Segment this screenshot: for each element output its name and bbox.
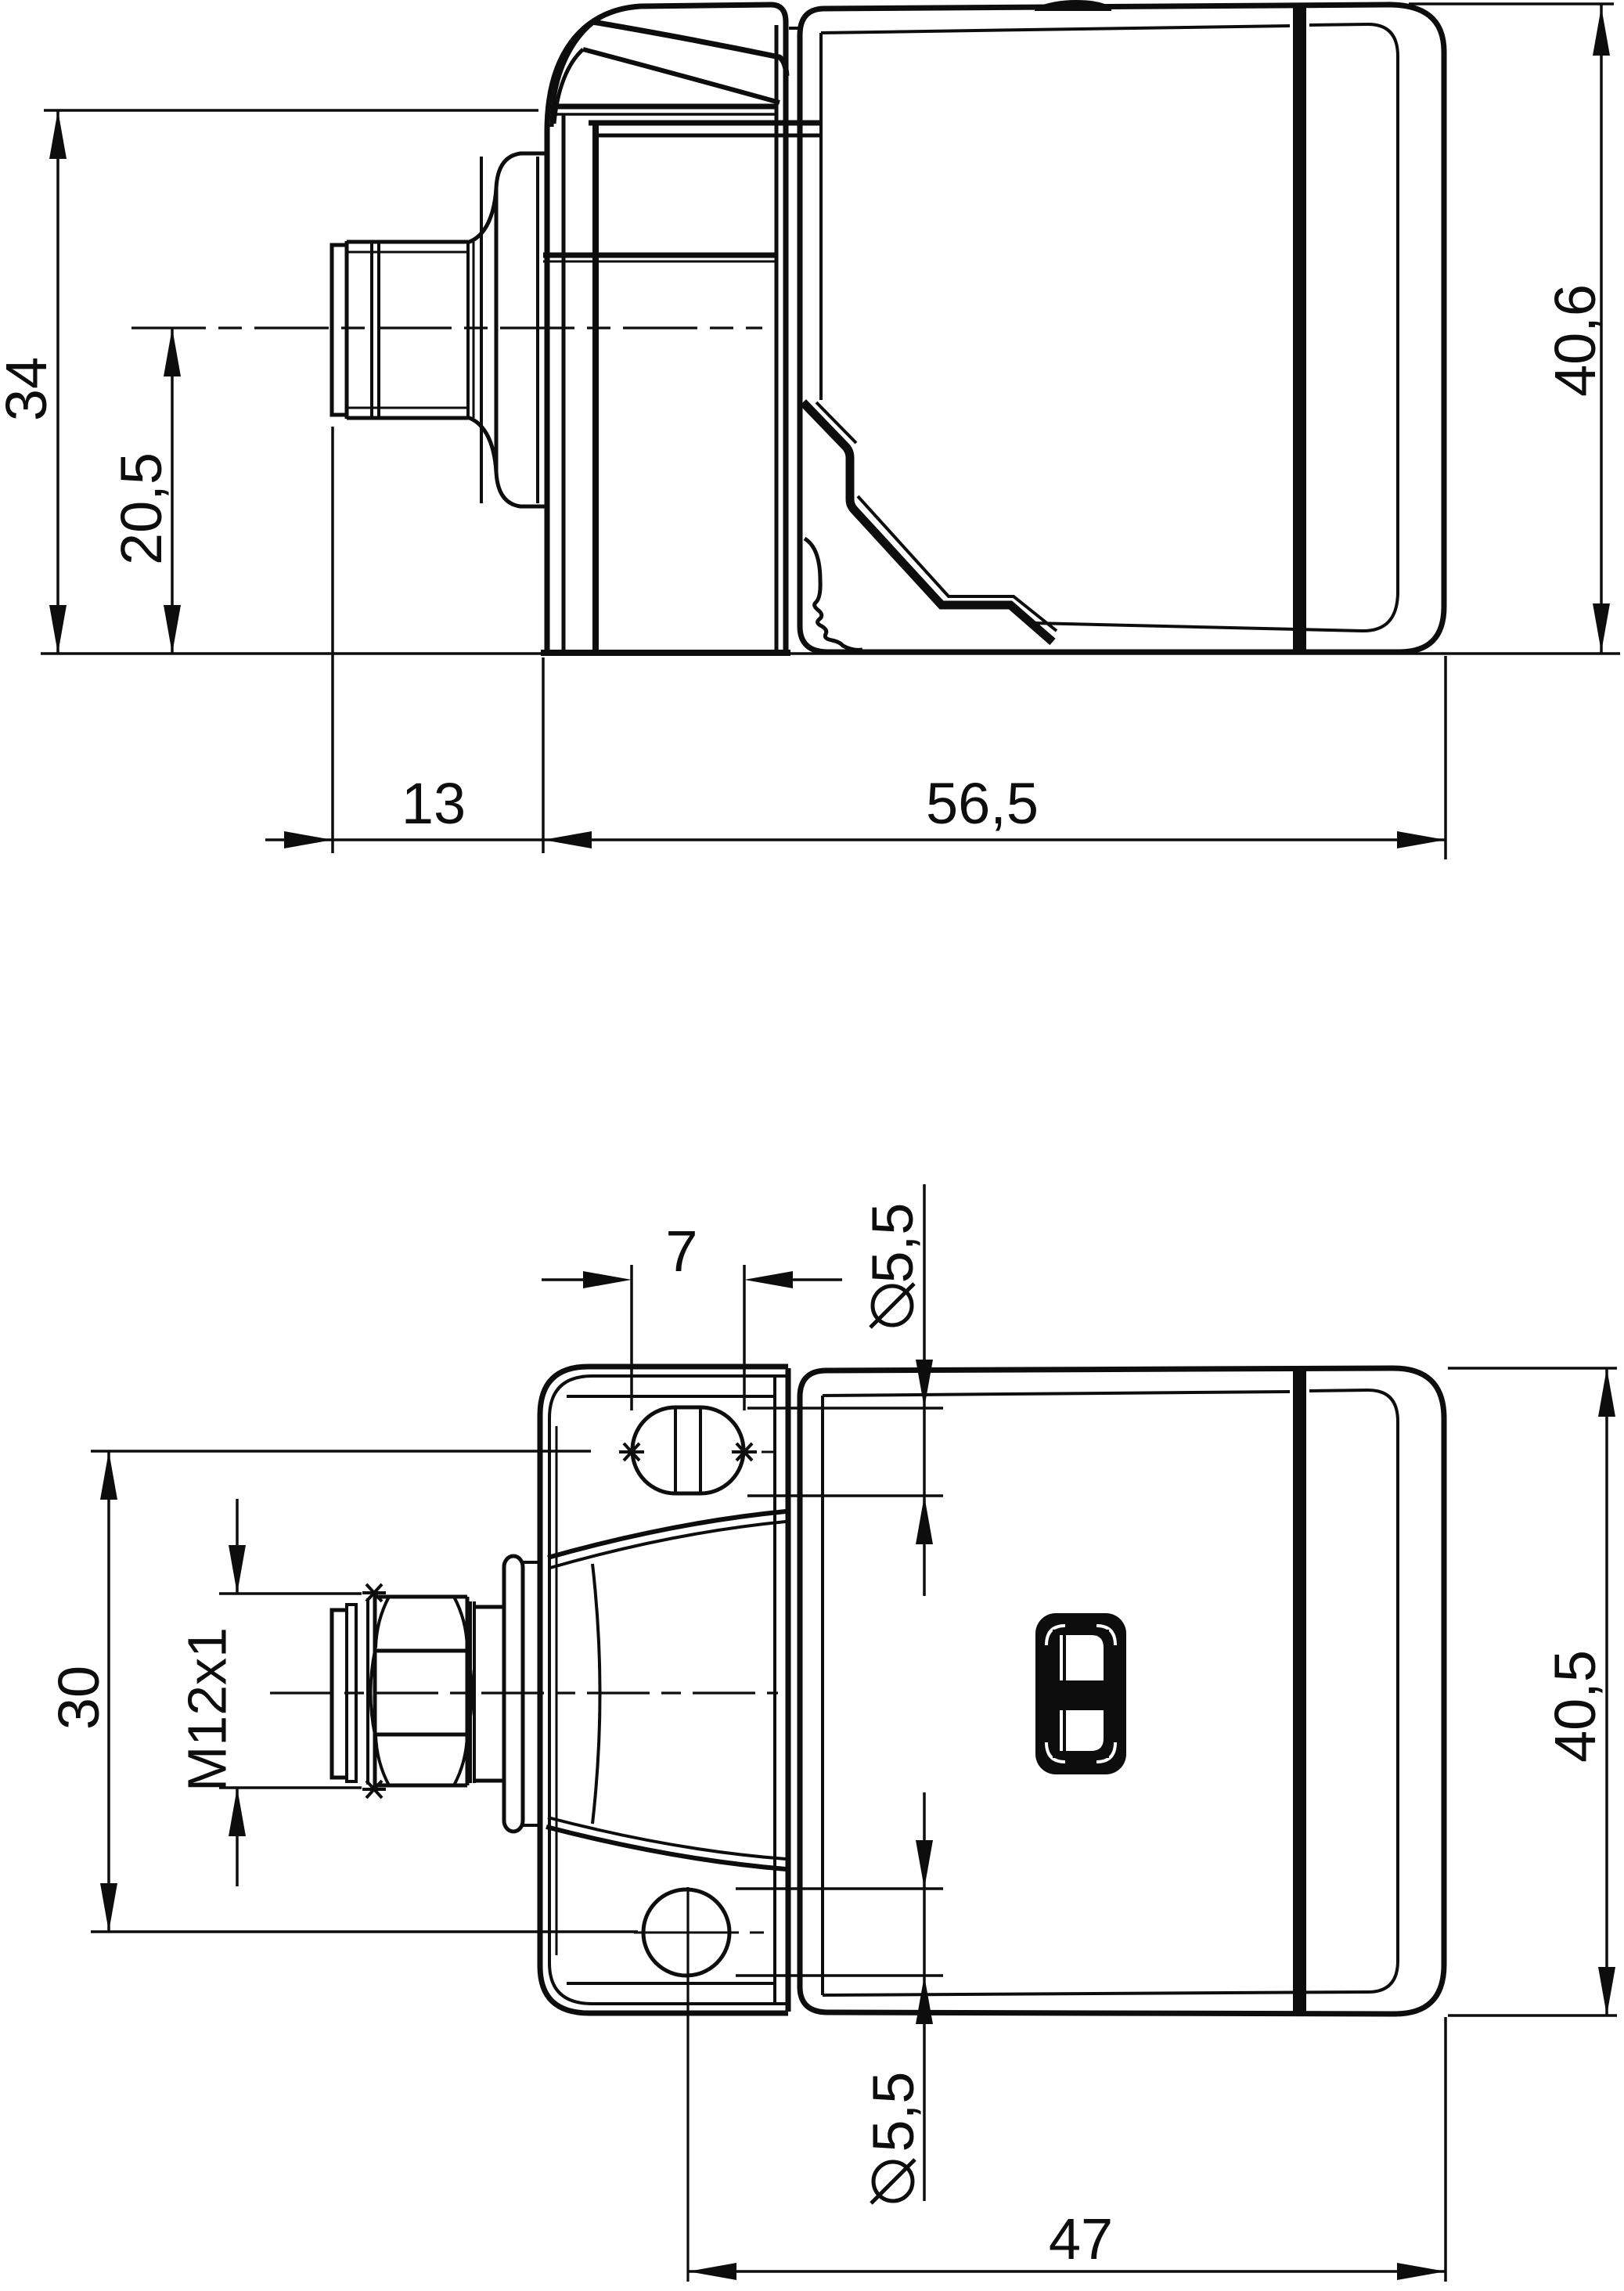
svg-text:30: 30 [46, 1666, 111, 1730]
svg-text:40,6: 40,6 [1543, 284, 1608, 397]
svg-text:34: 34 [0, 357, 59, 421]
svg-text:M12x1: M12x1 [177, 1627, 238, 1792]
svg-text:7: 7 [665, 1219, 697, 1284]
svg-text:20,5: 20,5 [109, 452, 174, 565]
svg-text:5,5: 5,5 [860, 1203, 925, 1284]
svg-text:13: 13 [401, 771, 466, 836]
svg-text:40,5: 40,5 [1543, 1650, 1608, 1763]
svg-text:5,5: 5,5 [861, 2072, 926, 2152]
svg-text:56,5: 56,5 [926, 771, 1039, 836]
svg-text:47: 47 [1049, 2206, 1113, 2271]
